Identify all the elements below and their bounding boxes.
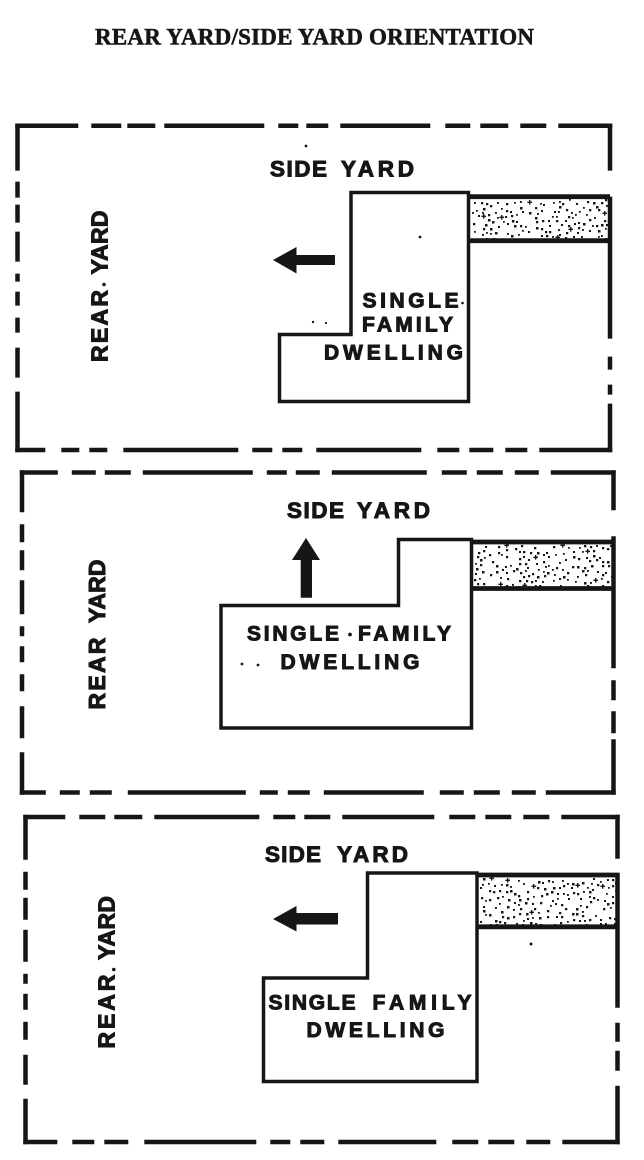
svg-text:SIDE: SIDE xyxy=(265,842,321,867)
svg-text:DWELLING: DWELLING xyxy=(281,651,420,674)
svg-text:DWELLING: DWELLING xyxy=(307,1019,445,1042)
svg-text:REAR: REAR xyxy=(84,637,110,709)
svg-text:SINGLE: SINGLE xyxy=(247,623,339,646)
svg-text:REAR: REAR xyxy=(94,974,120,1048)
svg-text:SINGLE: SINGLE xyxy=(269,992,356,1015)
svg-text:REAR: REAR xyxy=(87,290,113,362)
svg-text:YARD: YARD xyxy=(357,498,430,523)
svg-text:SIDE: SIDE xyxy=(287,498,344,523)
svg-text:YARD: YARD xyxy=(341,157,414,182)
svg-text:YARD: YARD xyxy=(337,842,408,867)
svg-text:SIDE: SIDE xyxy=(270,157,327,182)
svg-text:REAR YARD/SIDE YARD ORIENTATIO: REAR YARD/SIDE YARD ORIENTATION xyxy=(95,25,534,50)
svg-text:DWELLING: DWELLING xyxy=(324,342,463,365)
svg-text:YARD: YARD xyxy=(94,896,120,960)
svg-text:YARD: YARD xyxy=(87,211,113,275)
svg-text:YARD: YARD xyxy=(84,560,110,624)
